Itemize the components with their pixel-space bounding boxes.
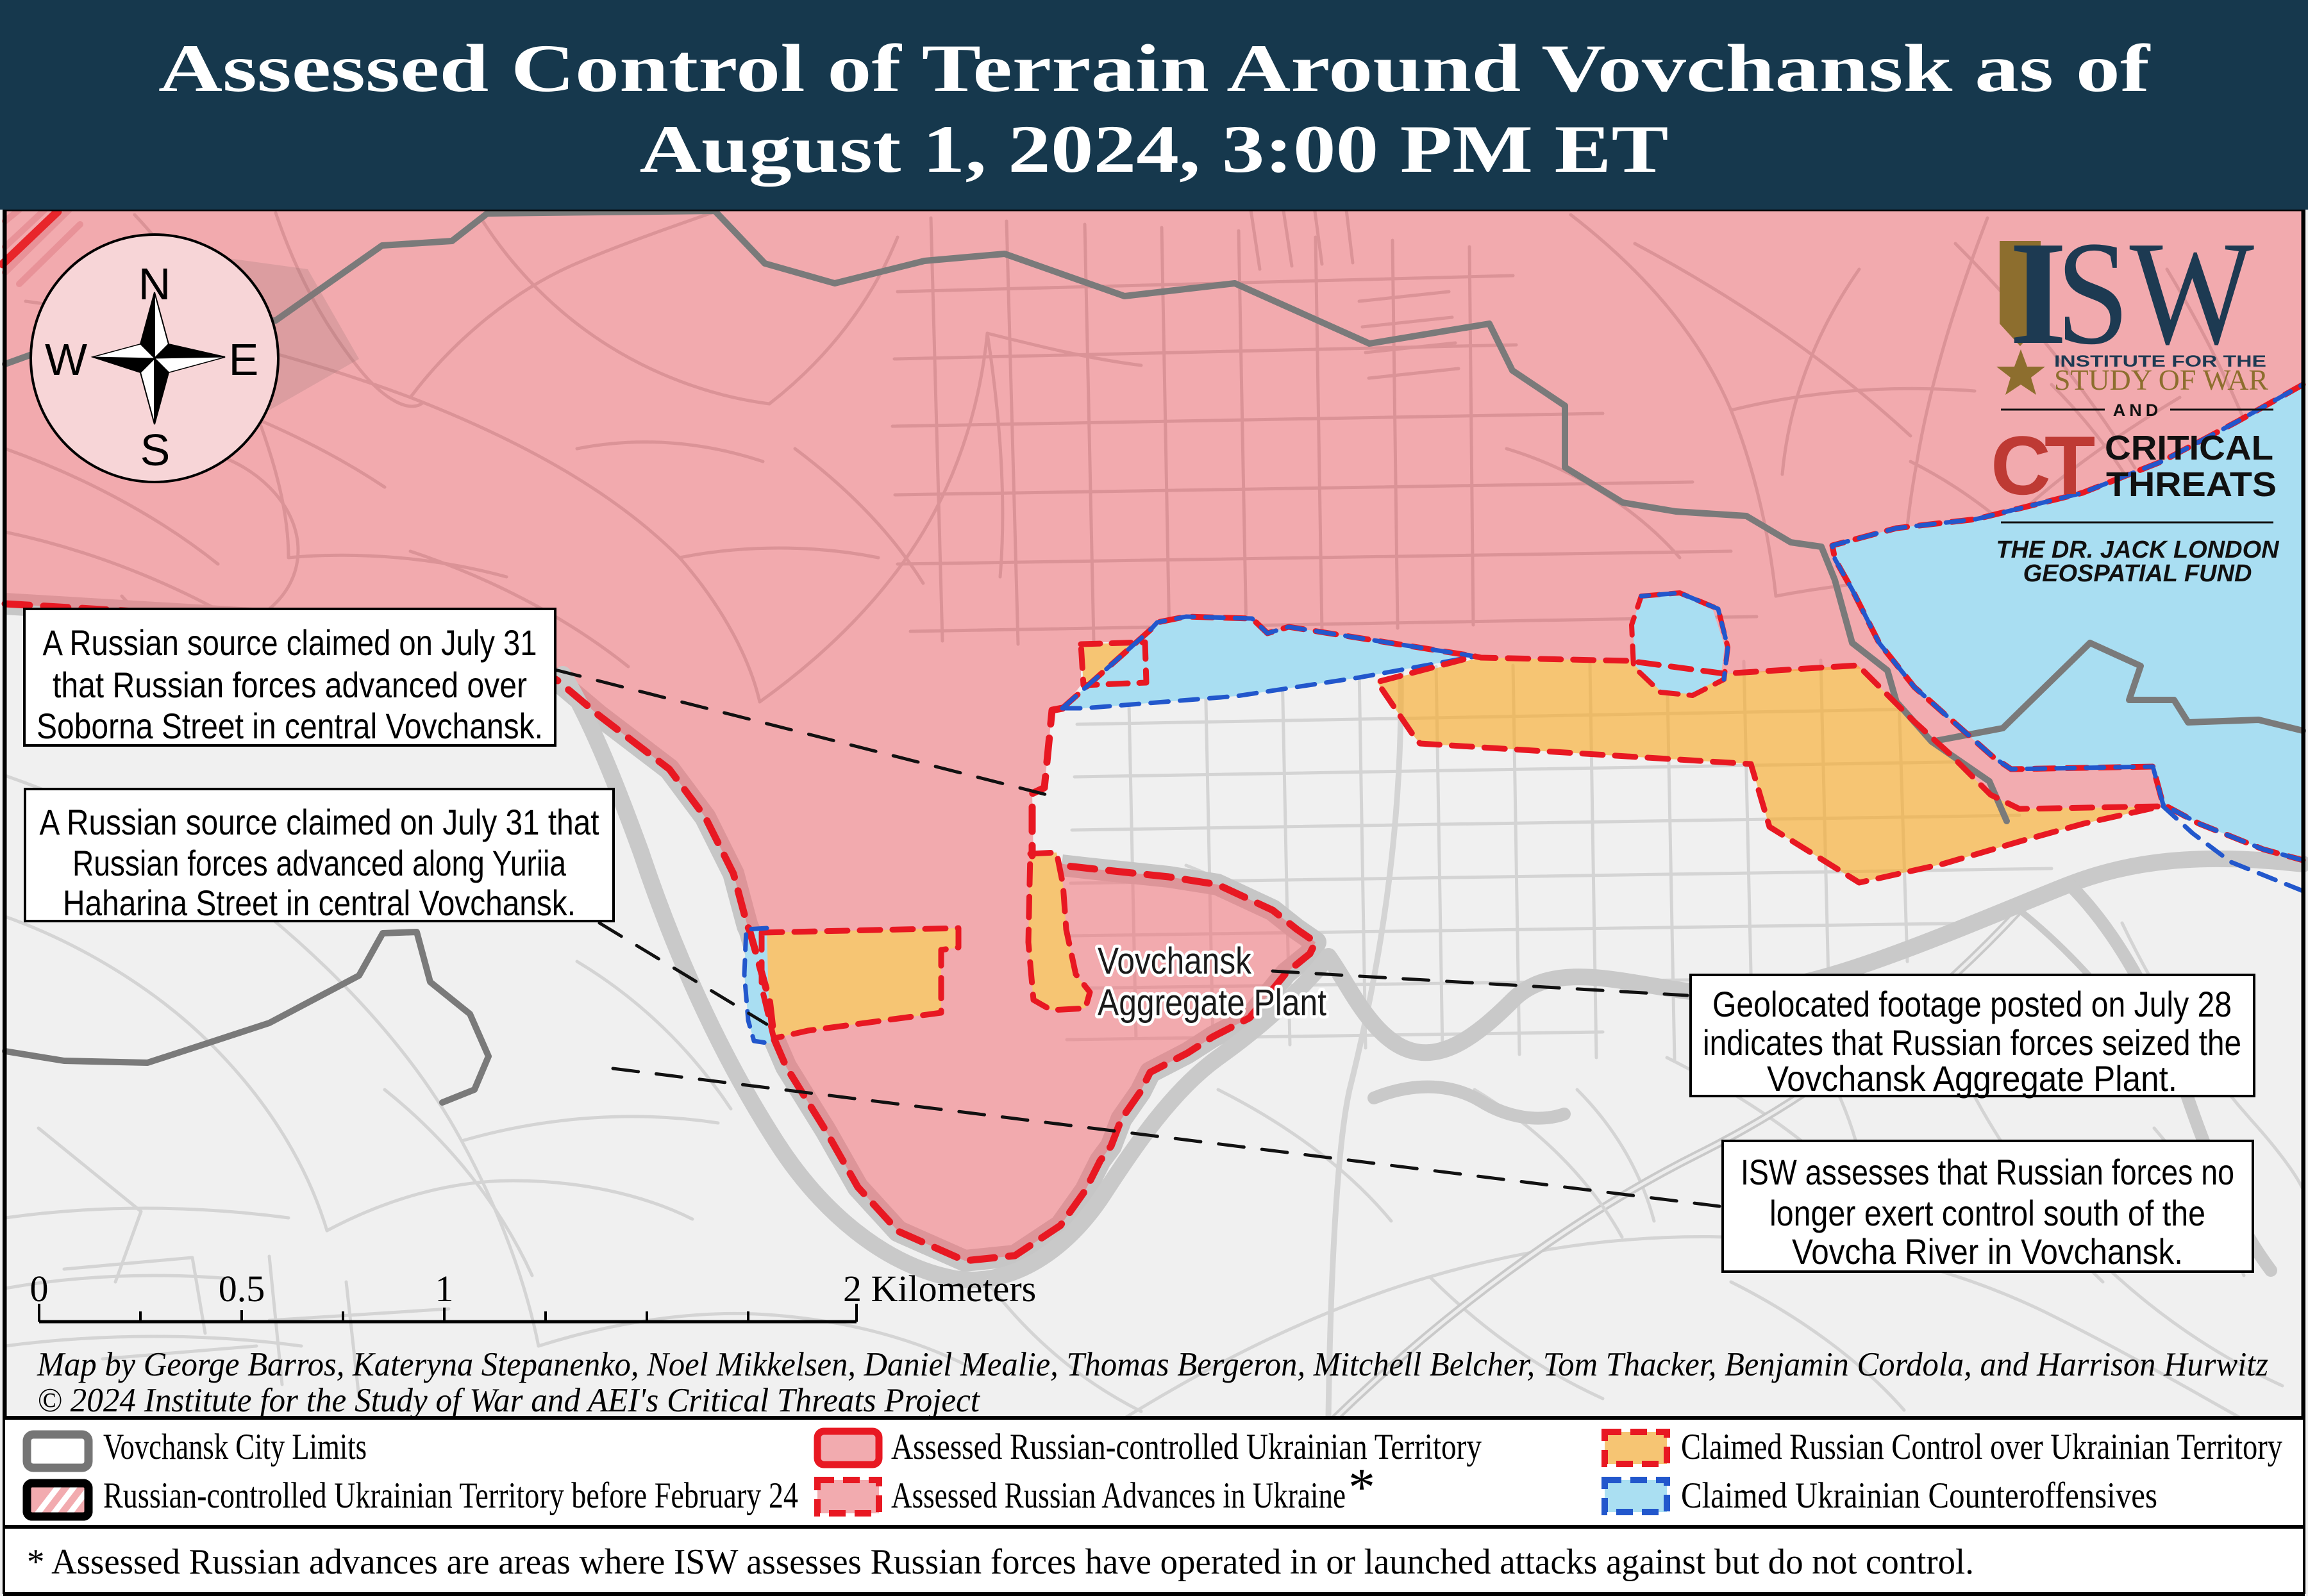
svg-text:THE DR. JACK LONDON: THE DR. JACK LONDON [1996,536,2280,563]
svg-text:Russian-controlled Ukrainian T: Russian-controlled Ukrainian Territory b… [103,1475,798,1516]
svg-text:A Russian source claimed on Ju: A Russian source claimed on July 31 that [40,802,599,842]
svg-text:Haharina Street in central Vov: Haharina Street in central Vovchansk. [63,883,576,923]
svg-text:0: 0 [30,1268,49,1309]
svg-text:Map by George Barros, Kateryna: Map by George Barros, Kateryna Stepanenk… [37,1346,2268,1383]
svg-text:CRITICAL: CRITICAL [2105,429,2273,467]
svg-text:*: * [1348,1458,1375,1517]
svg-text:Assessed Control of Terrain Ar: Assessed Control of Terrain Around Vovch… [158,31,2151,106]
svg-text:1: 1 [435,1268,454,1309]
svg-text:Vovchansk Aggregate Plant.: Vovchansk Aggregate Plant. [1767,1058,2177,1099]
svg-text:that Russian forces advanced o: that Russian forces advanced over [53,665,527,705]
svg-text:2 Kilometers: 2 Kilometers [843,1268,1036,1309]
svg-text:longer exert control south of: longer exert control south of the [1769,1193,2205,1233]
svg-text:* Assessed Russian advances ar: * Assessed Russian advances are areas wh… [27,1542,1974,1582]
svg-text:Assessed Russian Advances in U: Assessed Russian Advances in Ukraine [891,1475,1346,1516]
svg-text:AND: AND [2113,401,2162,420]
svg-text:Assessed Russian-controlled Uk: Assessed Russian-controlled Ukrainian Te… [891,1427,1482,1467]
svg-text:ISW assesses that Russian forc: ISW assesses that Russian forces no [1741,1152,2234,1192]
svg-text:Soborna Street in central Vovc: Soborna Street in central Vovchansk. [37,706,543,746]
svg-text:W: W [45,335,87,385]
svg-text:SW: SW [2056,211,2254,376]
svg-text:N: N [138,259,171,309]
svg-text:A Russian source claimed on Ju: A Russian source claimed on July 31 [43,622,537,663]
svg-text:E: E [229,335,259,385]
svg-text:STUDY OF WAR: STUDY OF WAR [2054,364,2268,396]
svg-text:CT: CT [1991,419,2095,512]
svg-text:© 2024 Institute for the Study: © 2024 Institute for the Study of War an… [37,1382,980,1419]
svg-text:S: S [140,425,171,475]
svg-text:Geolocated footage posted on J: Geolocated footage posted on July 28 [1712,984,2232,1024]
svg-text:Claimed Ukrainian Counteroffen: Claimed Ukrainian Counteroffensives [1681,1475,2157,1516]
svg-text:Vovchansk City Limits: Vovchansk City Limits [103,1427,367,1467]
svg-text:THREATS: THREATS [2106,465,2277,504]
svg-text:Russian forces advanced along: Russian forces advanced along Yuriia [72,843,567,883]
svg-text:August 1, 2024, 3:00 PM ET: August 1, 2024, 3:00 PM ET [640,112,1669,187]
svg-text:indicates that Russian forces: indicates that Russian forces seized the [1703,1022,2241,1063]
svg-text:GEOSPATIAL FUND: GEOSPATIAL FUND [2023,560,2252,587]
svg-text:Vovcha River in Vovchansk.: Vovcha River in Vovchansk. [1792,1231,2183,1272]
svg-text:Claimed Russian Control over U: Claimed Russian Control over Ukrainian T… [1681,1427,2282,1467]
svg-text:0.5: 0.5 [219,1268,265,1309]
svg-text:Vovchansk: Vovchansk [1098,940,1252,982]
svg-text:Aggregate Plant: Aggregate Plant [1098,982,1326,1024]
